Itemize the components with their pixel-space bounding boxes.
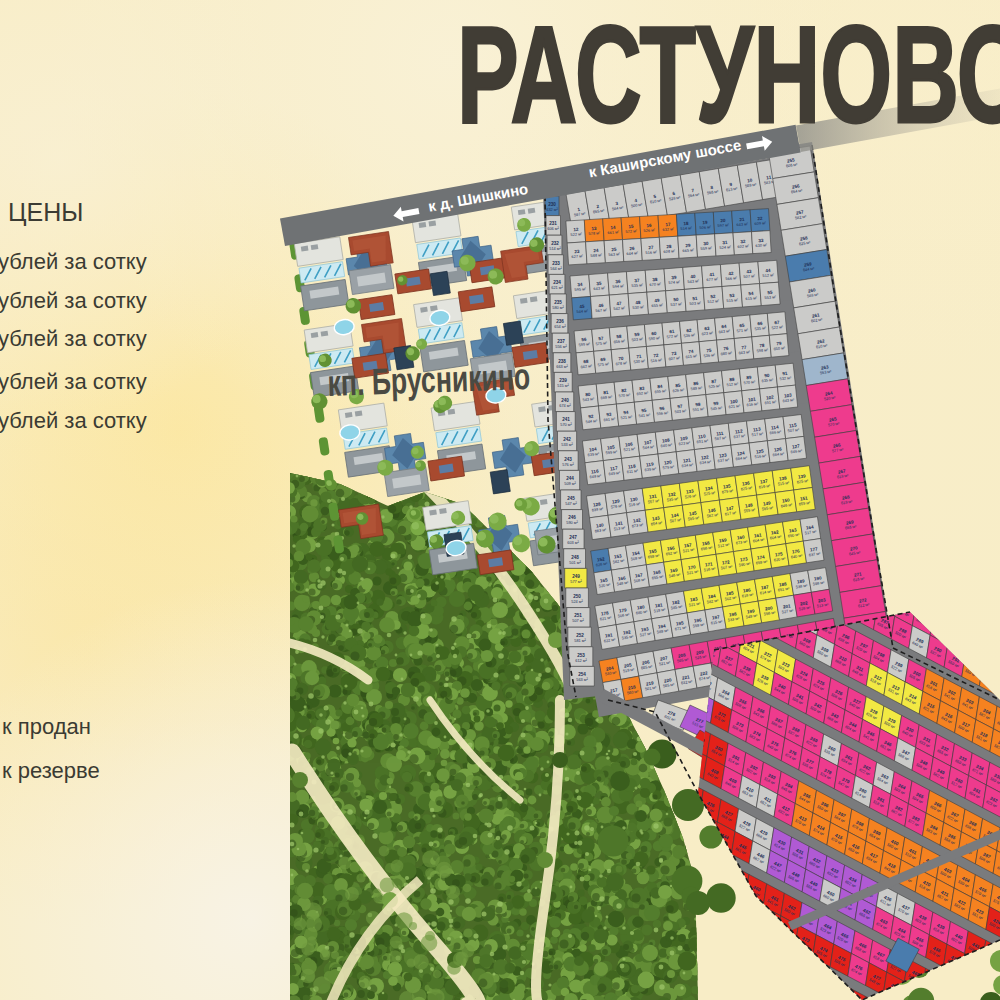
svg-text:кп. Брусникино: кп. Брусникино	[327, 356, 531, 404]
svg-text:рублей за сотку: рублей за сотку	[0, 369, 147, 394]
svg-text:к резерве: к резерве	[2, 758, 100, 783]
svg-text:рублей за сотку: рублей за сотку	[0, 249, 147, 274]
svg-text:РАСТУНОВО: РАСТУНОВО	[457, 0, 1000, 151]
svg-text:ЦЕНЫ: ЦЕНЫ	[8, 198, 83, 226]
svg-text:рублей за сотку: рублей за сотку	[0, 408, 147, 433]
svg-text:к продан: к продан	[2, 714, 91, 739]
svg-text:рублей за сотку: рублей за сотку	[0, 288, 147, 313]
svg-text:рублей за сотку: рублей за сотку	[0, 326, 147, 351]
